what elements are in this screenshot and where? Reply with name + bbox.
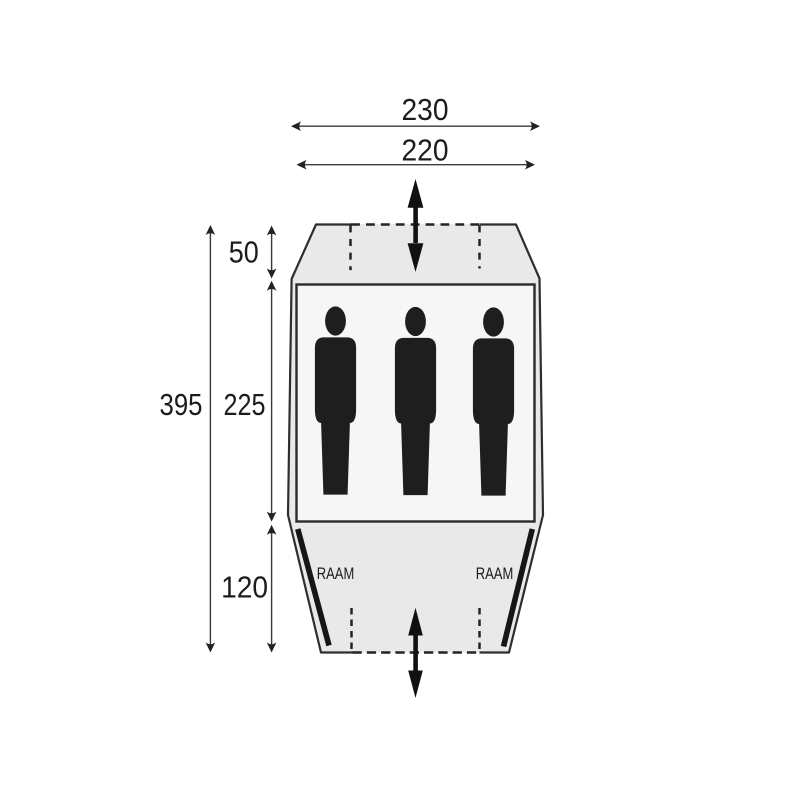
svg-text:RAAM: RAAM [317,565,355,583]
svg-text:120: 120 [221,570,268,605]
svg-text:230: 230 [402,92,449,127]
svg-text:220: 220 [402,132,449,167]
svg-text:50: 50 [229,235,259,270]
svg-text:395: 395 [160,387,203,422]
svg-text:225: 225 [224,387,266,422]
svg-text:RAAM: RAAM [476,565,514,583]
